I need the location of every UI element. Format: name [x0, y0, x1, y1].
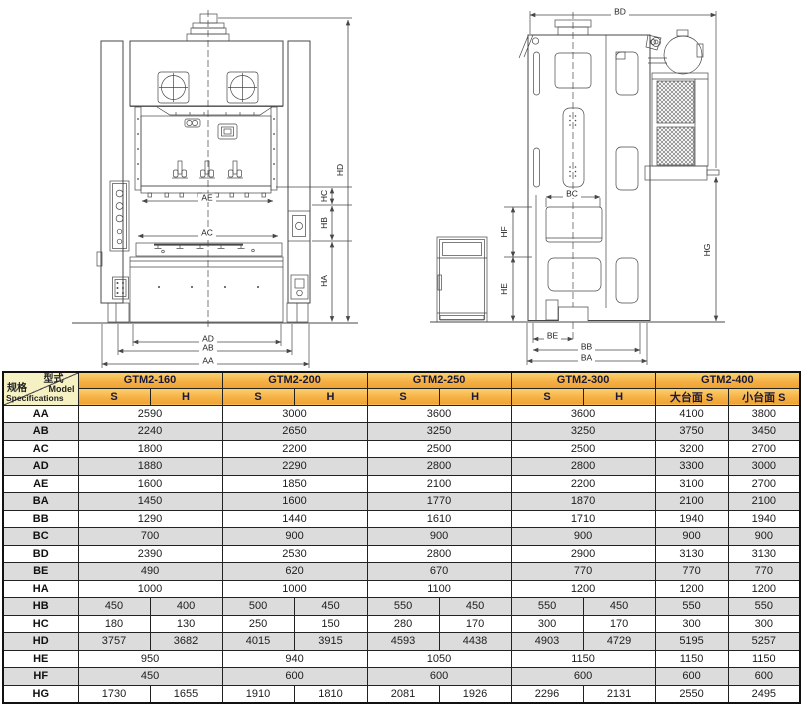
row-label: HE — [3, 650, 78, 668]
dim-label-hc: HC — [319, 190, 329, 202]
table-cell: 950 — [78, 650, 222, 668]
model-header: GTM2-200 — [222, 372, 367, 388]
row-label: HB — [3, 598, 78, 616]
table-row: AB224026503250325037503450 — [3, 423, 800, 441]
slide — [141, 116, 271, 197]
row-label: HC — [3, 615, 78, 633]
table-cell: 1150 — [728, 650, 800, 668]
side-base — [546, 300, 588, 322]
side-view: BD HG BC HF HE BE BB B — [430, 7, 725, 366]
press-spec-sheet: HD HC HB HA AE AC AD AB AA — [0, 0, 801, 704]
table-cell: 300 — [655, 615, 728, 633]
table-cell: 4903 — [511, 633, 583, 651]
table-cell: 900 — [222, 528, 367, 546]
dim-label-bd: BD — [614, 7, 626, 17]
table-cell: 3300 — [655, 458, 728, 476]
table-cell: 2900 — [511, 545, 655, 563]
table-cell: 1850 — [222, 475, 367, 493]
table-cell: 1880 — [78, 458, 222, 476]
dim-label-he: HE — [499, 283, 509, 295]
subheader: H — [294, 388, 367, 405]
corner-header-cell: 型式 Model 规格 Specifications — [3, 372, 78, 405]
table-cell: 3000 — [222, 405, 367, 423]
table-cell: 1600 — [78, 475, 222, 493]
row-label: AE — [3, 475, 78, 493]
spec-table: 型式 Model 规格 Specifications GTM2-160 GTM2… — [2, 371, 801, 704]
subheader: H — [439, 388, 511, 405]
dim-label-hg: HG — [702, 244, 712, 257]
table-row: HE9509401050115011501150 — [3, 650, 800, 668]
table-cell: 3750 — [655, 423, 728, 441]
subheader: H — [150, 388, 222, 405]
subheader: H — [583, 388, 655, 405]
table-row: BC700900900900900900 — [3, 528, 800, 546]
table-cell: 3682 — [150, 633, 222, 651]
table-cell: 3600 — [511, 405, 655, 423]
table-cell: 1200 — [728, 580, 800, 598]
row-label: HG — [3, 685, 78, 703]
table-cell: 600 — [728, 668, 800, 686]
table-cell: 3915 — [294, 633, 367, 651]
table-cell: 600 — [655, 668, 728, 686]
table-cell: 3100 — [655, 475, 728, 493]
table-cell: 2500 — [367, 440, 511, 458]
table-cell: 900 — [655, 528, 728, 546]
table-cell: 670 — [367, 563, 511, 581]
subheader-row: S H S H S H S H 大台面 S 小台面 S — [3, 388, 800, 405]
row-label: HF — [3, 668, 78, 686]
guide-rails — [135, 107, 277, 190]
table-cell: 2296 — [511, 685, 583, 703]
row-label: HA — [3, 580, 78, 598]
table-cell: 300 — [728, 615, 800, 633]
dim-label-ac: AC — [201, 228, 213, 238]
table-cell: 4593 — [367, 633, 439, 651]
dim-label-ha: HA — [319, 275, 329, 287]
bed — [130, 257, 283, 322]
table-cell: 180 — [78, 615, 150, 633]
row-label: BD — [3, 545, 78, 563]
table-cell: 770 — [728, 563, 800, 581]
table-cell: 2290 — [222, 458, 367, 476]
crown — [130, 41, 283, 106]
table-cell: 170 — [439, 615, 511, 633]
lower-left-box — [113, 277, 129, 299]
table-cell: 900 — [728, 528, 800, 546]
dim-label-ae: AE — [201, 193, 213, 203]
table-cell: 1100 — [367, 580, 511, 598]
table-cell: 2100 — [367, 475, 511, 493]
table-cell: 450 — [294, 598, 367, 616]
model-header: GTM2-400 — [655, 372, 800, 388]
table-cell: 5195 — [655, 633, 728, 651]
dim-label-hb: HB — [319, 217, 329, 229]
table-cell: 3250 — [511, 423, 655, 441]
table-cell: 1870 — [511, 493, 655, 511]
table-cell: 2100 — [728, 493, 800, 511]
table-row: BA145016001770187021002100 — [3, 493, 800, 511]
model-header: GTM2-300 — [511, 372, 655, 388]
table-cell: 2550 — [655, 685, 728, 703]
subheader: 小台面 S — [728, 388, 800, 405]
table-row: AA259030003600360041003800 — [3, 405, 800, 423]
table-cell: 1150 — [655, 650, 728, 668]
table-cell: 1450 — [78, 493, 222, 511]
table-cell: 3000 — [728, 458, 800, 476]
table-cell: 1050 — [367, 650, 511, 668]
table-cell: 170 — [583, 615, 655, 633]
table-cell: 2530 — [222, 545, 367, 563]
subheader: S — [511, 388, 583, 405]
table-cell: 130 — [150, 615, 222, 633]
control-cabinet — [437, 237, 487, 322]
spec-table-body: AA259030003600360041003800AB224026503250… — [3, 405, 800, 703]
table-cell: 1610 — [367, 510, 511, 528]
row-label: BC — [3, 528, 78, 546]
table-cell: 450 — [583, 598, 655, 616]
table-cell: 2800 — [367, 458, 511, 476]
table-cell: 1940 — [728, 510, 800, 528]
table-row: HA100010001100120012001200 — [3, 580, 800, 598]
table-cell: 2240 — [78, 423, 222, 441]
table-cell: 3200 — [655, 440, 728, 458]
table-cell: 5257 — [728, 633, 800, 651]
body-openings — [534, 38, 661, 304]
table-cell: 2390 — [78, 545, 222, 563]
table-cell: 300 — [511, 615, 583, 633]
row-label: AD — [3, 458, 78, 476]
corner-bracket — [519, 35, 539, 58]
table-row: BB129014401610171019401940 — [3, 510, 800, 528]
subheader: 大台面 S — [655, 388, 728, 405]
table-cell: 1200 — [655, 580, 728, 598]
table-cell: 2700 — [728, 440, 800, 458]
table-opening — [546, 207, 602, 291]
table-cell: 1940 — [655, 510, 728, 528]
table-cell: 620 — [222, 563, 367, 581]
table-cell: 1655 — [150, 685, 222, 703]
table-cell: 2100 — [655, 493, 728, 511]
table-cell: 4438 — [439, 633, 511, 651]
table-cell: 1440 — [222, 510, 367, 528]
table-cell: 490 — [78, 563, 222, 581]
dim-label-be: BE — [547, 331, 559, 341]
subheader: S — [78, 388, 150, 405]
dim-label-hd: HD — [335, 164, 345, 176]
bolster — [136, 243, 282, 256]
model-header: GTM2-250 — [367, 372, 511, 388]
table-cell: 900 — [367, 528, 511, 546]
crown-band — [130, 107, 283, 116]
model-header-row: 型式 Model 规格 Specifications GTM2-160 GTM2… — [3, 372, 800, 388]
table-cell: 250 — [222, 615, 294, 633]
row-label: AA — [3, 405, 78, 423]
dim-label-ba: BA — [581, 353, 593, 363]
table-cell: 2700 — [728, 475, 800, 493]
table-row: HF450600600600600600 — [3, 668, 800, 686]
table-cell: 770 — [511, 563, 655, 581]
table-cell: 1800 — [78, 440, 222, 458]
table-cell: 700 — [78, 528, 222, 546]
subheader: S — [367, 388, 439, 405]
table-cell: 500 — [222, 598, 294, 616]
table-cell: 2800 — [511, 458, 655, 476]
knockout-rods — [172, 161, 243, 178]
front-view: HD HC HB HA AE AC AD AB AA — [72, 10, 358, 368]
table-cell: 1150 — [511, 650, 655, 668]
subheader: S — [222, 388, 294, 405]
control-panel — [110, 181, 129, 251]
technical-drawing: HD HC HB HA AE AC AD AB AA — [0, 0, 801, 371]
table-cell: 940 — [222, 650, 367, 668]
flywheel — [646, 30, 703, 74]
table-cell: 4729 — [583, 633, 655, 651]
table-cell: 770 — [655, 563, 728, 581]
table-cell: 2800 — [367, 545, 511, 563]
table-cell: 1600 — [222, 493, 367, 511]
dim-label-bc: BC — [566, 189, 578, 199]
table-cell: 1926 — [439, 685, 511, 703]
table-cell: 3757 — [78, 633, 150, 651]
dim-label-aa: AA — [202, 356, 214, 366]
table-cell: 550 — [511, 598, 583, 616]
table-cell: 1000 — [78, 580, 222, 598]
row-label: BE — [3, 563, 78, 581]
outlet-pipe — [707, 170, 719, 175]
table-cell: 600 — [222, 668, 367, 686]
table-cell: 2200 — [511, 475, 655, 493]
table-cell: 3130 — [655, 545, 728, 563]
model-header: GTM2-160 — [78, 372, 222, 388]
lower-right-box — [291, 275, 308, 299]
table-cell: 3130 — [728, 545, 800, 563]
row-label: BA — [3, 493, 78, 511]
table-cell: 1000 — [222, 580, 367, 598]
table-cell: 280 — [367, 615, 439, 633]
table-cell: 2650 — [222, 423, 367, 441]
table-cell: 600 — [367, 668, 511, 686]
row-label: AB — [3, 423, 78, 441]
table-cell: 3800 — [728, 405, 800, 423]
row-label: HD — [3, 633, 78, 651]
table-cell: 2081 — [367, 685, 439, 703]
right-upright — [288, 41, 310, 303]
table-cell: 2590 — [78, 405, 222, 423]
table-cell: 2495 — [728, 685, 800, 703]
table-cell: 900 — [511, 528, 655, 546]
table-cell: 1810 — [294, 685, 367, 703]
table-cell: 2131 — [583, 685, 655, 703]
table-cell: 3600 — [367, 405, 511, 423]
corner-spec-en: Specifications — [6, 394, 64, 403]
table-cell: 1910 — [222, 685, 294, 703]
table-row: BE490620670770770770 — [3, 563, 800, 581]
table-row: HB450400500450550450550450550550 — [3, 598, 800, 616]
table-cell: 4015 — [222, 633, 294, 651]
right-column-box — [288, 211, 310, 241]
table-row: AE160018502100220031002700 — [3, 475, 800, 493]
table-cell: 1200 — [511, 580, 655, 598]
left-upright — [101, 41, 123, 303]
dim-label-bb: BB — [581, 342, 593, 352]
table-cell: 2200 — [222, 440, 367, 458]
table-cell: 1770 — [367, 493, 511, 511]
table-cell: 400 — [150, 598, 222, 616]
table-cell: 550 — [655, 598, 728, 616]
table-cell: 3250 — [367, 423, 511, 441]
table-cell: 600 — [511, 668, 655, 686]
table-cell: 1290 — [78, 510, 222, 528]
table-cell: 4100 — [655, 405, 728, 423]
table-cell: 450 — [78, 668, 222, 686]
table-cell: 450 — [439, 598, 511, 616]
row-label: AC — [3, 440, 78, 458]
table-cell: 1730 — [78, 685, 150, 703]
table-row: AC180022002500250032002700 — [3, 440, 800, 458]
table-row: BD239025302800290031303130 — [3, 545, 800, 563]
table-cell: 1710 — [511, 510, 655, 528]
table-row: HG17301655191018102081192622962131255024… — [3, 685, 800, 703]
table-row: HD37573682401539154593443849034729519552… — [3, 633, 800, 651]
belt-guard — [645, 73, 719, 180]
table-cell: 550 — [367, 598, 439, 616]
table-row: HC180130250150280170300170300300 — [3, 615, 800, 633]
table-cell: 550 — [728, 598, 800, 616]
table-row: AD188022902800280033003000 — [3, 458, 800, 476]
table-cell: 450 — [78, 598, 150, 616]
table-cell: 2500 — [511, 440, 655, 458]
dim-label-hf: HF — [499, 226, 509, 237]
dim-label-ab: AB — [202, 343, 214, 353]
table-cell: 3450 — [728, 423, 800, 441]
table-cell: 150 — [294, 615, 367, 633]
side-body — [528, 35, 650, 321]
row-label: BB — [3, 510, 78, 528]
